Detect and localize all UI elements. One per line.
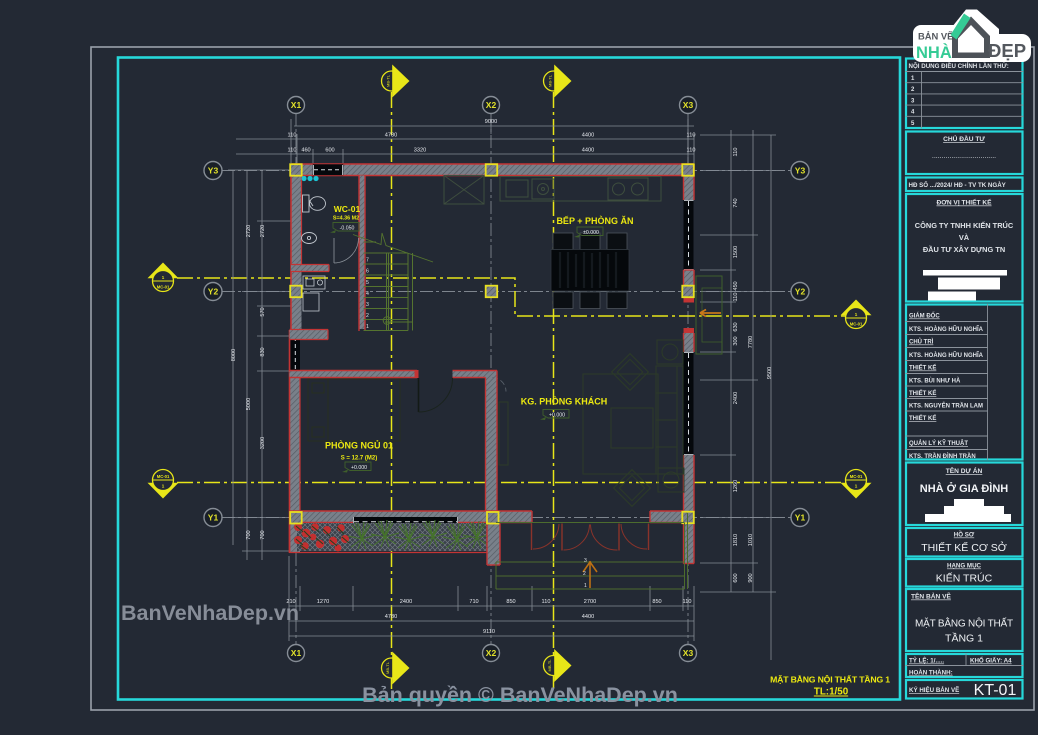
- svg-text:TẦNG 1: TẦNG 1: [945, 632, 983, 645]
- svg-text:BanVeNhaDep.vn: BanVeNhaDep.vn: [121, 601, 299, 625]
- svg-text:600: 600: [733, 573, 739, 582]
- svg-text:KTS. BÙI NHƯ HÀ: KTS. BÙI NHƯ HÀ: [909, 378, 961, 385]
- svg-text:HỒ SƠ: HỒ SƠ: [954, 532, 975, 539]
- svg-text:HĐ SỐ .../2024/ HĐ - TV TK NGÀ: HĐ SỐ .../2024/ HĐ - TV TK NGÀY: [909, 182, 1007, 189]
- svg-text:PHÒNG NGỦ 01: PHÒNG NGỦ 01: [325, 440, 393, 451]
- svg-text:110: 110: [288, 133, 297, 139]
- svg-text:4400: 4400: [582, 614, 594, 620]
- svg-text:2700: 2700: [584, 599, 596, 605]
- svg-text:KTS. HOÀNG HỮU NGHĨA: KTS. HOÀNG HỮU NGHĨA: [909, 352, 984, 359]
- svg-text:KHỔ GIẤY: A4: KHỔ GIẤY: A4: [970, 658, 1012, 665]
- svg-text:300: 300: [733, 336, 739, 345]
- svg-text:QUẢN LÝ KỸ THUẬT: QUẢN LÝ KỸ THUẬT: [909, 440, 968, 447]
- svg-text:THIẾT KẾ: THIẾT KẾ: [909, 390, 936, 397]
- svg-text:X3: X3: [683, 100, 694, 110]
- svg-text:MB-TL: MB-TL: [548, 74, 553, 87]
- svg-text:WC-01: WC-01: [334, 204, 361, 214]
- svg-text:S = 12.7 (M2): S = 12.7 (M2): [341, 456, 378, 462]
- svg-text:MC-01: MC-01: [157, 474, 170, 479]
- svg-text:BẢN VẼ: BẢN VẼ: [918, 31, 953, 42]
- svg-text:NHÀ Ở GIA ĐÌNH: NHÀ Ở GIA ĐÌNH: [920, 482, 1008, 495]
- svg-text:..............................: .................................: [932, 153, 996, 160]
- svg-text:7780: 7780: [748, 336, 754, 348]
- svg-text:3200: 3200: [260, 437, 266, 449]
- svg-text:Y1: Y1: [208, 513, 219, 523]
- svg-text:1500: 1500: [733, 246, 739, 258]
- svg-text:7: 7: [366, 258, 369, 264]
- svg-text:2400: 2400: [733, 392, 739, 404]
- svg-text:X2: X2: [486, 100, 497, 110]
- svg-text:X1: X1: [291, 648, 302, 658]
- svg-text:Y3: Y3: [208, 166, 219, 176]
- svg-text:850: 850: [506, 599, 515, 605]
- svg-text:KT-01: KT-01: [974, 682, 1017, 699]
- svg-text:MB-TL: MB-TL: [547, 659, 552, 672]
- svg-text:KÝ HIỆU BẢN VẼ: KÝ HIỆU BẢN VẼ: [909, 686, 959, 694]
- svg-text:ĐẦU TƯ XÂY DỰNG TN: ĐẦU TƯ XÂY DỰNG TN: [923, 244, 1005, 254]
- svg-text:THIẾT KẾ: THIẾT KẾ: [909, 415, 936, 422]
- svg-text:S=4.36 M2: S=4.36 M2: [333, 216, 359, 222]
- svg-text:Y3: Y3: [795, 166, 806, 176]
- svg-text:MC-01: MC-01: [850, 322, 863, 327]
- svg-text:MB-TL: MB-TL: [385, 661, 390, 674]
- svg-text:2720: 2720: [246, 225, 252, 237]
- svg-text:KTS. NGUYỄN TRẦN LAM: KTS. NGUYỄN TRẦN LAM: [909, 403, 983, 410]
- svg-text:110: 110: [733, 148, 739, 157]
- svg-text:MC-01: MC-01: [157, 285, 170, 290]
- svg-text:1810: 1810: [733, 534, 739, 546]
- svg-text:700: 700: [260, 530, 266, 539]
- svg-text:1270: 1270: [317, 599, 329, 605]
- svg-text:110: 110: [733, 293, 739, 302]
- svg-text:KTS. TRẦN ĐÌNH TRẦN: KTS. TRẦN ĐÌNH TRẦN: [909, 452, 976, 460]
- svg-text:110: 110: [288, 148, 297, 154]
- svg-text:CHỦ TRÌ: CHỦ TRÌ: [909, 338, 934, 346]
- svg-text:4400: 4400: [582, 148, 594, 154]
- svg-text:TL:1/50: TL:1/50: [814, 687, 849, 698]
- svg-text:4780: 4780: [385, 133, 397, 139]
- svg-text:740: 740: [733, 198, 739, 207]
- svg-text:6: 6: [366, 269, 369, 275]
- svg-text:MB-TL: MB-TL: [386, 74, 391, 87]
- svg-text:8000: 8000: [231, 349, 237, 361]
- svg-text:1: 1: [584, 583, 587, 589]
- svg-text:450: 450: [733, 281, 739, 290]
- svg-text:Y2: Y2: [208, 287, 219, 297]
- svg-text:5: 5: [366, 280, 369, 286]
- svg-text:X2: X2: [486, 648, 497, 658]
- svg-text:830: 830: [260, 347, 266, 356]
- svg-text:3: 3: [366, 302, 369, 308]
- svg-text:9110: 9110: [483, 629, 495, 635]
- svg-text:TÊN BẢN VẼ: TÊN BẢN VẼ: [911, 592, 952, 601]
- svg-text:THIẾT KẾ: THIẾT KẾ: [909, 365, 936, 372]
- svg-text:HOÀN THÀNH:: HOÀN THÀNH:: [909, 670, 953, 677]
- svg-text:GIÁM ĐỐC: GIÁM ĐỐC: [909, 313, 940, 320]
- svg-text:110: 110: [683, 599, 692, 605]
- svg-text:630: 630: [733, 322, 739, 331]
- svg-text:9500: 9500: [767, 367, 773, 379]
- svg-text:MC-01: MC-01: [850, 474, 863, 479]
- svg-text:X1: X1: [291, 100, 302, 110]
- svg-text:1260: 1260: [733, 480, 739, 492]
- svg-text:460: 460: [301, 148, 310, 154]
- svg-text:Y1: Y1: [795, 513, 806, 523]
- svg-text:900: 900: [748, 573, 754, 582]
- svg-text:1010: 1010: [748, 534, 754, 546]
- svg-text:THIẾT KẾ CƠ SỞ: THIẾT KẾ CƠ SỞ: [921, 541, 1007, 554]
- svg-text:Y2: Y2: [795, 287, 806, 297]
- svg-text:ĐẸP: ĐẸP: [988, 40, 1026, 61]
- svg-text:110: 110: [687, 133, 696, 139]
- svg-text:110: 110: [542, 599, 551, 605]
- svg-text:850: 850: [652, 599, 661, 605]
- svg-text:NHÀ: NHÀ: [916, 43, 952, 62]
- svg-text:MẶT BẰNG NỘI THẤT: MẶT BẰNG NỘI THẤT: [915, 617, 1013, 630]
- svg-text:HẠNG MỤC: HẠNG MỤC: [947, 563, 982, 570]
- svg-text:110: 110: [687, 148, 696, 154]
- svg-text:710: 710: [469, 599, 478, 605]
- svg-text:5000: 5000: [246, 398, 252, 410]
- svg-text:KIẾN TRÚC: KIẾN TRÚC: [936, 572, 993, 585]
- svg-text:KG. PHÒNG KHÁCH: KG. PHÒNG KHÁCH: [521, 396, 608, 407]
- svg-text:700: 700: [246, 530, 252, 539]
- svg-text:Bản quyền © BanVeNhaDep.vn: Bản quyền © BanVeNhaDep.vn: [362, 683, 678, 707]
- svg-text:4400: 4400: [582, 133, 594, 139]
- svg-text:4780: 4780: [385, 614, 397, 620]
- svg-text:NỘI DUNG ĐIỀU CHỈNH LẦN THỨ:: NỘI DUNG ĐIỀU CHỈNH LẦN THỨ:: [909, 62, 1009, 70]
- svg-text:TÊN DỰ ÁN: TÊN DỰ ÁN: [946, 466, 983, 475]
- svg-text:2: 2: [366, 313, 369, 319]
- svg-text:MẶT BẰNG NỘI THẤT TẦNG 1: MẶT BẰNG NỘI THẤT TẦNG 1: [770, 674, 890, 685]
- svg-text:1: 1: [366, 324, 369, 330]
- svg-text:TỶ LỆ: 1/.....: TỶ LỆ: 1/.....: [909, 657, 944, 665]
- svg-text:KTS. HOÀNG HỮU NGHĨA: KTS. HOÀNG HỮU NGHĨA: [909, 326, 984, 333]
- svg-text:3: 3: [584, 558, 587, 564]
- svg-text:BẾP + PHÒNG ĂN: BẾP + PHÒNG ĂN: [556, 215, 633, 226]
- svg-text:4: 4: [366, 291, 369, 297]
- svg-text:570: 570: [260, 307, 266, 316]
- svg-text:CÔNG TY TNHH KIẾN TRÚC: CÔNG TY TNHH KIẾN TRÚC: [915, 220, 1014, 230]
- svg-text:X3: X3: [683, 648, 694, 658]
- svg-text:+0.000: +0.000: [549, 413, 565, 419]
- svg-text:+0.000: +0.000: [351, 465, 367, 471]
- svg-text:9000: 9000: [485, 119, 497, 125]
- svg-text:2720: 2720: [260, 225, 266, 237]
- svg-text:VÀ: VÀ: [959, 233, 970, 242]
- svg-text:3320: 3320: [414, 148, 426, 154]
- svg-text:600: 600: [325, 148, 334, 154]
- svg-text:2400: 2400: [400, 599, 412, 605]
- svg-text:-0.050: -0.050: [340, 226, 355, 232]
- svg-text:±0.000: ±0.000: [583, 230, 599, 236]
- svg-text:2: 2: [583, 571, 586, 577]
